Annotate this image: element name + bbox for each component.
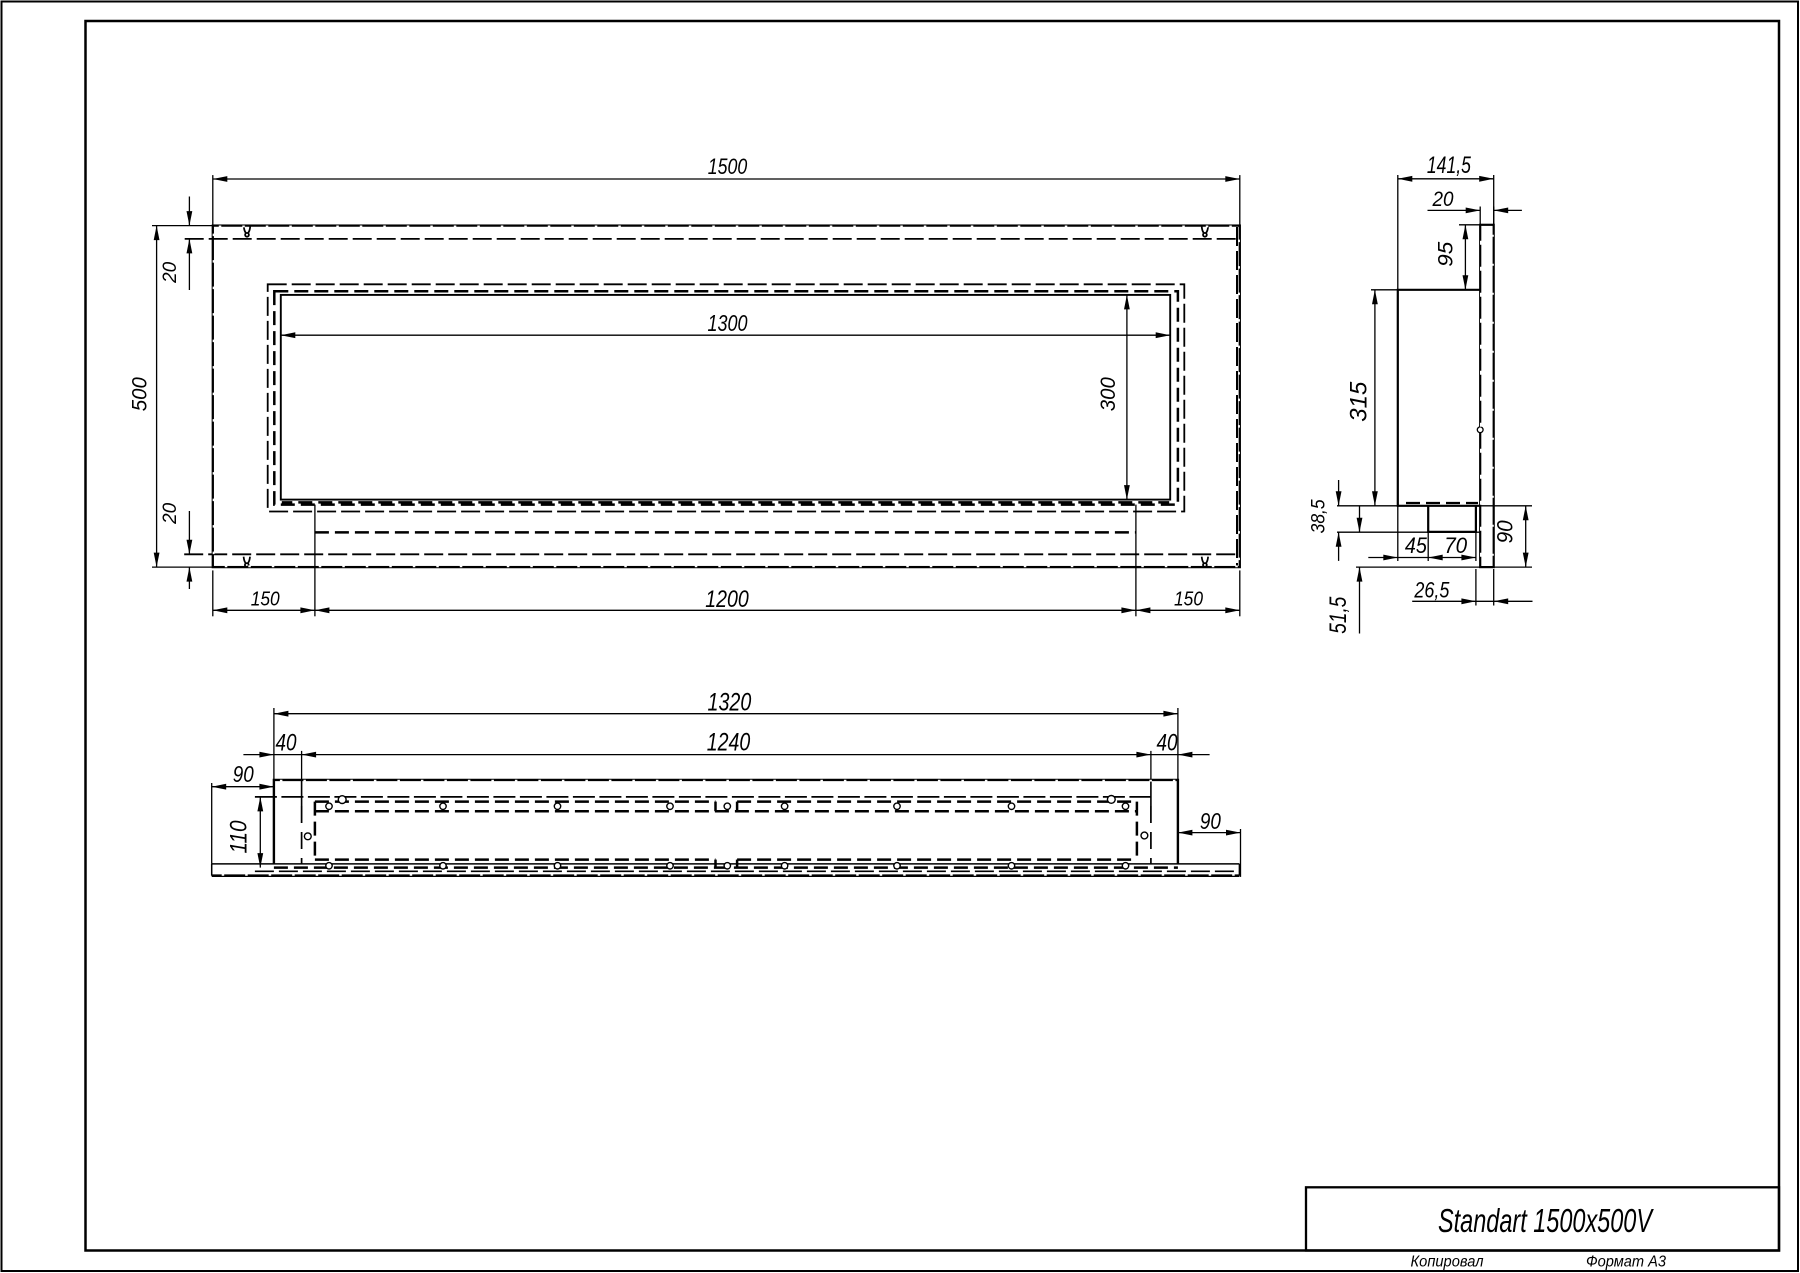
svg-text:45: 45: [1405, 533, 1428, 558]
svg-text:Standart 1500x500V: Standart 1500x500V: [1438, 1202, 1654, 1239]
svg-text:20: 20: [160, 261, 181, 283]
svg-text:38,5: 38,5: [1309, 499, 1330, 533]
svg-text:1500: 1500: [708, 154, 748, 179]
svg-text:40: 40: [276, 729, 298, 756]
svg-text:1300: 1300: [708, 310, 748, 336]
svg-text:1200: 1200: [705, 586, 749, 613]
svg-text:1320: 1320: [708, 689, 752, 717]
svg-text:Копировал: Копировал: [1411, 1254, 1484, 1271]
svg-text:141,5: 141,5: [1427, 152, 1471, 179]
svg-text:110: 110: [226, 820, 253, 854]
svg-text:315: 315: [1346, 381, 1373, 422]
svg-text:51,5: 51,5: [1325, 596, 1352, 634]
svg-text:150: 150: [251, 587, 280, 610]
svg-text:1240: 1240: [707, 729, 751, 757]
svg-text:20: 20: [160, 502, 181, 524]
svg-text:90: 90: [1200, 808, 1221, 834]
svg-text:Формат А3: Формат А3: [1586, 1254, 1666, 1271]
svg-text:40: 40: [1157, 729, 1179, 756]
svg-text:20: 20: [1432, 188, 1454, 211]
svg-text:300: 300: [1096, 377, 1120, 411]
svg-text:500: 500: [128, 377, 152, 411]
svg-text:95: 95: [1434, 241, 1458, 267]
svg-text:90: 90: [1493, 520, 1518, 544]
svg-text:90: 90: [233, 761, 254, 787]
svg-text:26,5: 26,5: [1414, 578, 1450, 603]
svg-text:70: 70: [1444, 533, 1468, 558]
svg-text:150: 150: [1174, 587, 1203, 610]
